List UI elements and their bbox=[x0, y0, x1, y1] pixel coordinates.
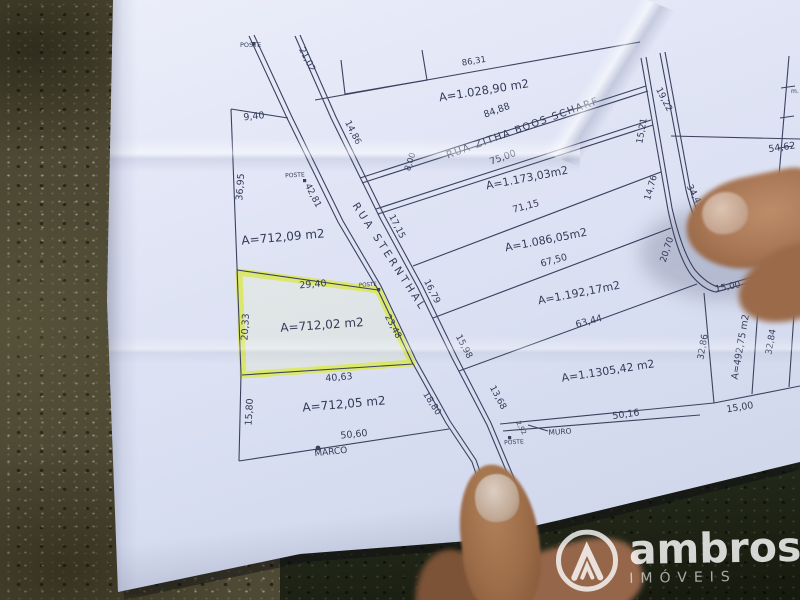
brand-name: ambrosi bbox=[629, 530, 800, 568]
brand-text: ambrosi IMÓVEIS bbox=[629, 530, 800, 587]
meter-note: m. bbox=[791, 89, 799, 95]
dim-36-95: 36,95 bbox=[235, 173, 246, 201]
photo-scene: POSTE 21,02 14,86 9,40 36,95 POSTE 42,81… bbox=[0, 0, 800, 600]
muro-label: MURO bbox=[548, 427, 572, 436]
dim-40-63: 40,63 bbox=[325, 372, 353, 384]
watermark-logo: ambrosi IMÓVEIS bbox=[555, 520, 800, 598]
dim-20-33: 20,33 bbox=[241, 313, 252, 341]
brand-a-icon bbox=[555, 529, 618, 592]
right-hand-finger bbox=[678, 162, 800, 312]
brand-tagline: IMÓVEIS bbox=[629, 568, 800, 587]
dim-15-80: 15,80 bbox=[245, 398, 256, 426]
poste-label-top: POSTE bbox=[240, 42, 261, 49]
dim-29-40: 29,40 bbox=[299, 279, 327, 291]
dim-9-40: 9,40 bbox=[243, 111, 265, 123]
